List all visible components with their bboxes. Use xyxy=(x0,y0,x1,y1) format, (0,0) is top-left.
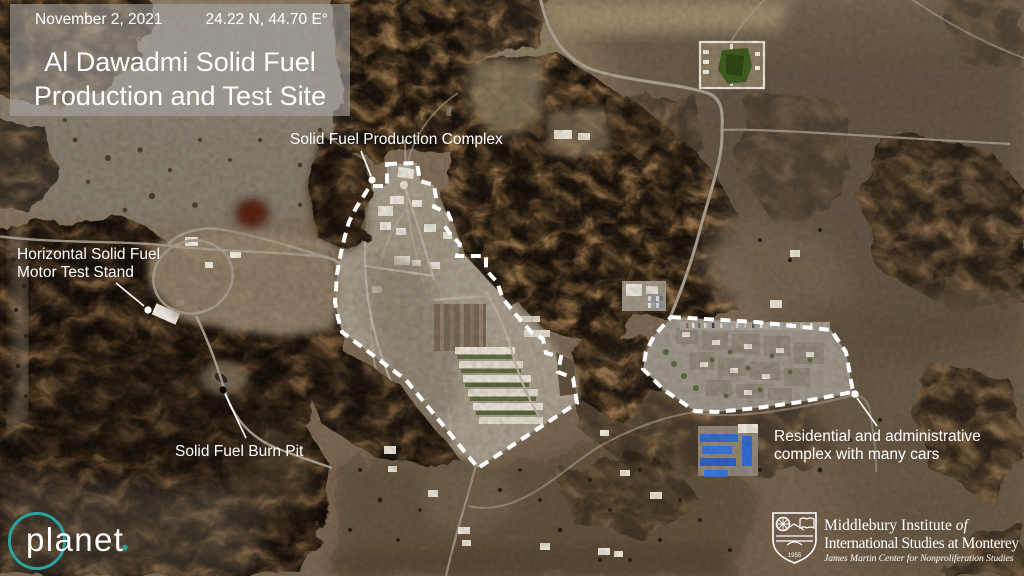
svg-text:Horizontal Solid Fuel: Horizontal Solid Fuel xyxy=(17,246,160,263)
svg-text:complex with many cars: complex with many cars xyxy=(774,446,940,463)
svg-text:Motor Test Stand: Motor Test Stand xyxy=(17,264,134,281)
svg-text:Residential and administrative: Residential and administrative xyxy=(774,428,981,445)
svg-text:1955: 1955 xyxy=(788,553,802,559)
svg-text:James Martin Center for Nonpro: James Martin Center for Nonproliferation… xyxy=(824,553,1014,564)
svg-text:planet: planet xyxy=(26,521,124,558)
svg-text:Production and Test Site: Production and Test Site xyxy=(34,81,326,111)
svg-text:November 2, 2021: November 2, 2021 xyxy=(35,11,163,28)
svg-text:Al Dawadmi Solid Fuel: Al Dawadmi Solid Fuel xyxy=(44,47,316,77)
svg-text:International Studies at Monte: International Studies at Monterey xyxy=(824,535,1019,552)
svg-text:Middlebury Institute of: Middlebury Institute of xyxy=(824,517,971,534)
svg-text:24.22 N, 44.70 E°: 24.22 N, 44.70 E° xyxy=(205,11,328,28)
svg-text:Solid Fuel Production Complex: Solid Fuel Production Complex xyxy=(290,131,503,148)
svg-text:Solid Fuel Burn Pit: Solid Fuel Burn Pit xyxy=(175,443,304,460)
